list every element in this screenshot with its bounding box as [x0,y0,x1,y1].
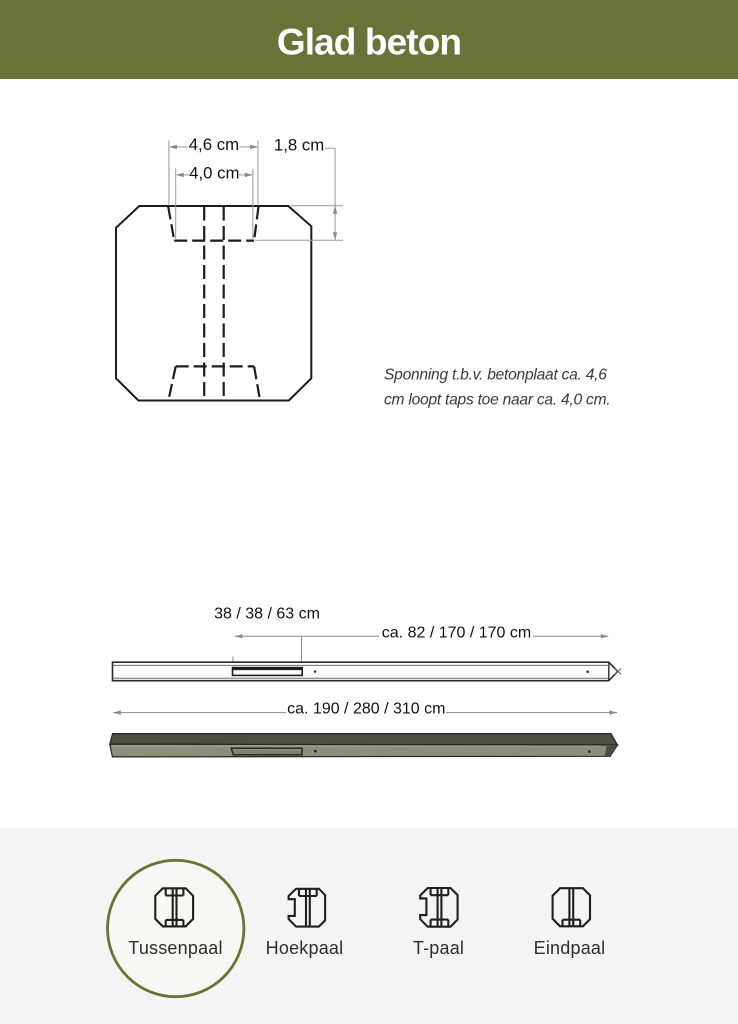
svg-text:38 / 38 / 63 cm: 38 / 38 / 63 cm [214,605,320,622]
svg-text:Hoekpaal: Hoekpaal [266,938,344,958]
svg-text:T-paal: T-paal [413,938,464,958]
svg-text:Tussenpaal: Tussenpaal [128,938,222,958]
svg-text:Eindpaal: Eindpaal [534,938,606,958]
svg-text:Glad beton: Glad beton [277,22,461,63]
svg-text:4,6 cm: 4,6 cm [189,135,239,154]
svg-text:ca. 82 / 170 / 170 cm: ca. 82 / 170 / 170 cm [382,625,531,642]
svg-text:Sponning t.b.v. betonplaat ca.: Sponning t.b.v. betonplaat ca. 4,6 [384,367,607,384]
svg-text:ca. 190 / 280 / 310 cm: ca. 190 / 280 / 310 cm [287,701,445,718]
svg-text:cm loopt taps toe naar ca. 4,0: cm loopt taps toe naar ca. 4,0 cm. [384,392,610,409]
svg-text:1,8 cm: 1,8 cm [274,136,324,155]
svg-text:4,0 cm: 4,0 cm [189,163,239,182]
